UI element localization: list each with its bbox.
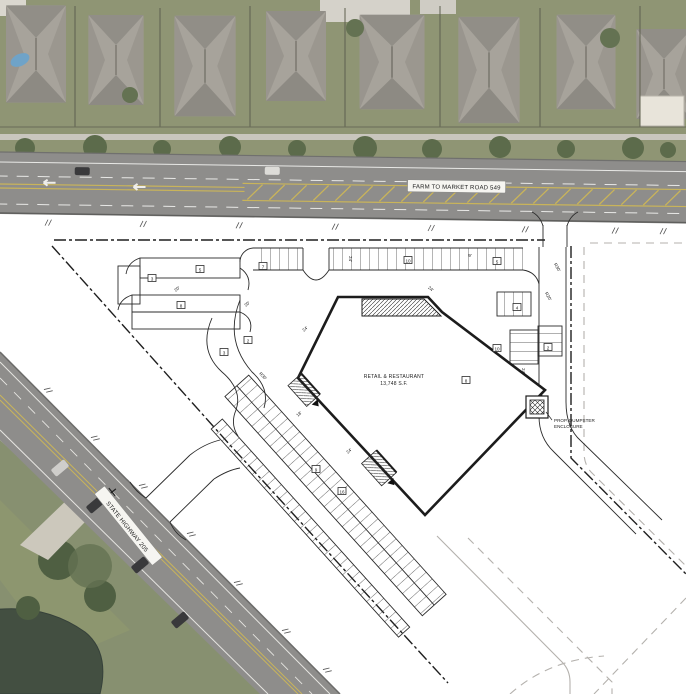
dimension-label: R30' [258,371,268,381]
dimension-label: 24' [301,325,309,333]
parking-count-value: 10 [405,258,411,263]
parking-count-value: 2 [547,345,550,350]
dimension-label: 20' [243,300,251,308]
parking-east-column [510,330,538,364]
dimension-label: 20' [173,285,181,293]
parking-count-value: 3 [223,350,226,355]
frontage-tick [139,482,148,491]
backyard-shed [640,96,684,126]
dimension-label: 18' [295,410,303,418]
frontage-tick [612,228,619,234]
vehicle [75,167,90,175]
dimension-label: 24' [521,368,526,374]
parking-count-value: 9 [315,467,318,472]
parking-count-value: 8 [180,303,183,308]
building-label-line1: RETAIL & RESTAURANT [364,374,424,380]
parking-north-row [240,247,523,280]
frontage-tick [187,530,196,539]
frontage-tick [44,386,53,395]
parking-nw-lot [118,258,251,332]
frontage-tick [140,221,147,227]
dimension-label: 24' [348,256,353,262]
parking-count-value: 4 [516,305,519,310]
fm549-label-text: FARM TO MARKET ROAD 549 [412,184,501,191]
parking-count-value: 7 [262,264,265,269]
dimension-label: 9' [468,253,471,258]
parking-count-value: 3 [151,276,154,281]
frontage-tick [332,224,339,230]
future-roads [437,243,686,694]
vehicle [265,167,280,175]
frontage-tick [428,225,435,231]
frontage-tick [323,666,332,675]
fm549-label: FARM TO MARKET ROAD 549 [407,180,505,193]
parking-count-value: 16 [339,489,345,494]
site-plan-screenshot: FARM TO MARKET ROAD 549 STATE [0,0,686,694]
frontage-tick [91,434,100,443]
parking-count-value: 5 [199,267,202,272]
parking-count-value: 2 [247,338,250,343]
east-drive [523,212,662,534]
frontage-tick [45,220,52,226]
fm549-road: FARM TO MARKET ROAD 549 [0,152,686,224]
concrete-patch [420,0,456,14]
parking-count-value: 8 [465,378,468,383]
dimension-label: R20' [544,291,553,301]
frontage-tick [234,579,243,588]
parking-count-value: 10 [494,346,500,351]
dimension-label: 24' [345,447,353,455]
frontage-tick [660,228,667,234]
dumpster-enclosure: PROP. DUMPSTER ENCLOSURE [526,396,595,429]
dimension-label: R30' [553,262,562,272]
frontage-tick [522,226,529,232]
site-plan-drawing-canvas: FARM TO MARKET ROAD 549 STATE [0,0,686,694]
frontage-tick [282,627,291,636]
dimension-label: 24' [427,285,435,293]
dumpster-note-line2: ENCLOSURE [554,424,583,429]
frontage-tick [236,222,243,228]
parking-count-value: 5 [496,259,499,264]
aerial-neighborhood [0,0,686,165]
parking-far-east [538,326,562,356]
building-label-line2: 13,748 S.F. [380,381,408,387]
dumpster-note-line1: PROP. DUMPSTER [554,418,595,423]
